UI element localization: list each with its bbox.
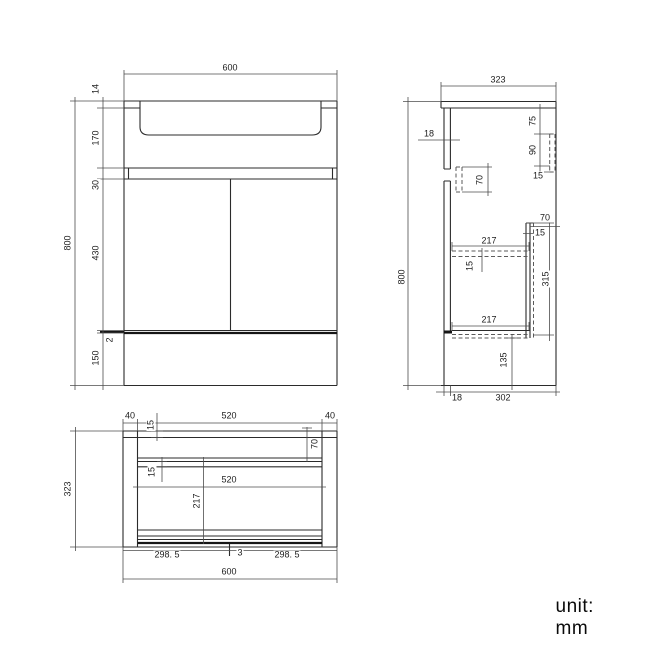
plan-side-right-label: 40: [324, 412, 336, 421]
side-front-bottom-label: 18: [451, 394, 463, 403]
plan-back-thickness-label: 15: [147, 419, 156, 431]
drawing-lines: [0, 0, 650, 650]
plan-inner-width-mid-label: 520: [220, 476, 237, 485]
side-rail-thickness-label: 15: [532, 172, 544, 181]
side-bottom-height-label: 135: [500, 351, 509, 368]
technical-drawing-page: 600 14 170 30 430 2 150 800 323 18 75 90…: [0, 0, 650, 650]
front-width-dim-label: 600: [221, 64, 238, 73]
front-rail-dim-label: 30: [92, 179, 101, 191]
side-front-thickness-label: 18: [423, 130, 435, 139]
plan-width-dim-label: 600: [220, 568, 237, 577]
plan-mid-thickness-label: 15: [148, 466, 157, 478]
front-door-dim-label: 430: [92, 244, 101, 261]
front-height-dim-label: 800: [64, 234, 73, 251]
front-rim-dim-label: 14: [92, 83, 101, 95]
side-shelf-bottom-label: 217: [480, 316, 497, 325]
plan-depth-dim-label: 323: [64, 480, 73, 497]
side-back-panel-thickness-label: 15: [534, 229, 546, 238]
side-shelf-thickness-label: 15: [466, 260, 475, 272]
plan-door-right-label: 298. 5: [273, 551, 300, 560]
side-shelf-top-label: 217: [480, 237, 497, 246]
unit-note: unit: mm: [556, 596, 619, 640]
side-rail-height-label: 90: [529, 144, 538, 156]
front-base-dim-label: 150: [92, 349, 101, 366]
plan-inner-width-top-label: 520: [220, 412, 237, 421]
front-basin-dim-label: 170: [92, 129, 101, 146]
plan-side-left-label: 40: [124, 412, 136, 421]
side-inner-depth-label: 302: [494, 394, 511, 403]
front-gap-dim-label: 2: [106, 336, 115, 343]
side-rail-offset-label: 75: [529, 115, 538, 127]
side-width-dim-label: 323: [489, 76, 506, 85]
plan-door-left-label: 298. 5: [153, 551, 180, 560]
side-back-panel-height-label: 315: [542, 270, 551, 287]
plan-rail-depth-label: 70: [311, 438, 320, 450]
side-back-gap-label: 70: [539, 214, 551, 223]
plan-inner-depth-label: 217: [193, 492, 202, 509]
plan-center-gap-label: 3: [236, 549, 243, 558]
side-bracket-label: 70: [476, 174, 485, 186]
side-height-dim-label: 800: [398, 268, 407, 285]
